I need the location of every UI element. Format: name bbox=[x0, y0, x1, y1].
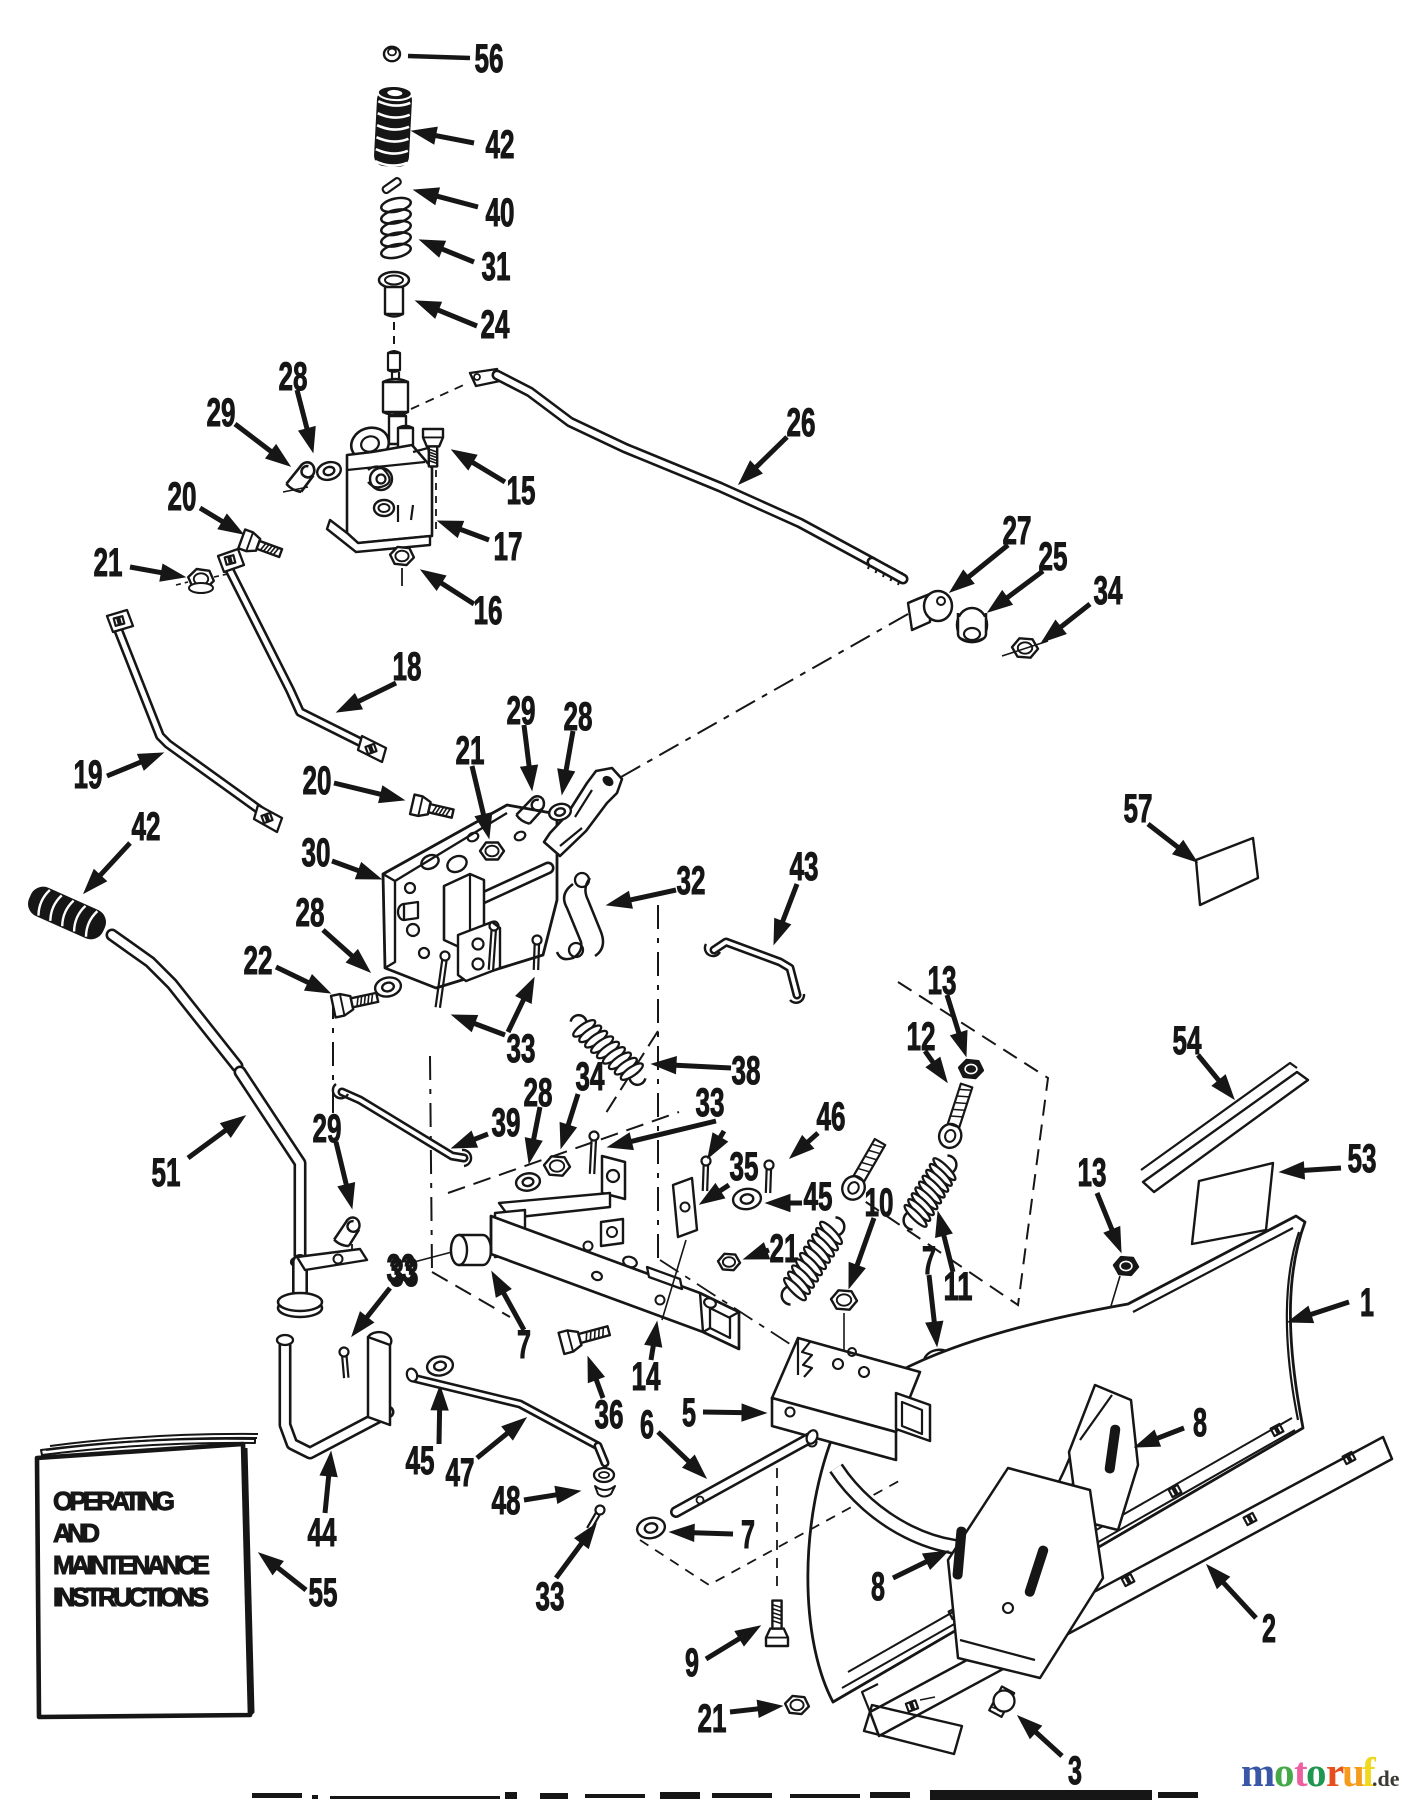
svg-text:19: 19 bbox=[74, 753, 103, 797]
svg-text:10: 10 bbox=[865, 1181, 894, 1225]
svg-text:12: 12 bbox=[907, 1015, 936, 1059]
svg-text:21: 21 bbox=[698, 1697, 727, 1741]
svg-text:26: 26 bbox=[787, 401, 816, 445]
svg-text:22: 22 bbox=[244, 939, 273, 983]
svg-text:44: 44 bbox=[308, 1511, 337, 1555]
svg-text:31: 31 bbox=[482, 245, 511, 289]
svg-text:28: 28 bbox=[296, 891, 325, 935]
svg-text:43: 43 bbox=[790, 845, 819, 889]
svg-text:48: 48 bbox=[492, 1479, 521, 1523]
svg-text:7: 7 bbox=[922, 1239, 936, 1283]
svg-text:16: 16 bbox=[474, 589, 503, 633]
svg-text:13: 13 bbox=[928, 959, 957, 1003]
svg-text:34: 34 bbox=[576, 1055, 605, 1099]
svg-text:8: 8 bbox=[871, 1565, 885, 1609]
svg-text:20: 20 bbox=[303, 759, 332, 803]
svg-text:21: 21 bbox=[456, 729, 485, 773]
svg-text:INSTRUCTIONS: INSTRUCTIONS bbox=[53, 1582, 209, 1612]
svg-text:7: 7 bbox=[741, 1513, 755, 1557]
svg-text:38: 38 bbox=[732, 1049, 761, 1093]
svg-text:33: 33 bbox=[696, 1081, 725, 1125]
svg-text:30: 30 bbox=[302, 831, 331, 875]
svg-text:24: 24 bbox=[481, 303, 510, 347]
svg-text:46: 46 bbox=[817, 1095, 846, 1139]
svg-text:1: 1 bbox=[1360, 1281, 1374, 1325]
svg-text:13: 13 bbox=[1078, 1151, 1107, 1195]
svg-text:40: 40 bbox=[486, 191, 515, 235]
svg-text:36: 36 bbox=[595, 1393, 624, 1437]
svg-text:2: 2 bbox=[1262, 1607, 1276, 1651]
svg-text:56: 56 bbox=[475, 37, 504, 81]
svg-text:6: 6 bbox=[640, 1403, 654, 1447]
svg-text:29: 29 bbox=[207, 391, 236, 435]
svg-text:3: 3 bbox=[1068, 1749, 1082, 1793]
svg-text:42: 42 bbox=[132, 805, 161, 849]
svg-text:28: 28 bbox=[279, 355, 308, 399]
svg-text:11: 11 bbox=[944, 1265, 973, 1309]
svg-text:55: 55 bbox=[309, 1571, 338, 1615]
svg-text:5: 5 bbox=[682, 1391, 696, 1435]
svg-text:53: 53 bbox=[1348, 1137, 1377, 1181]
svg-text:32: 32 bbox=[677, 859, 706, 903]
svg-text:45: 45 bbox=[804, 1175, 833, 1219]
svg-text:33: 33 bbox=[507, 1027, 536, 1071]
svg-text:33: 33 bbox=[536, 1575, 565, 1619]
svg-text:28: 28 bbox=[564, 695, 593, 739]
svg-text:m: m bbox=[1241, 1749, 1275, 1795]
svg-text:45: 45 bbox=[406, 1439, 435, 1483]
svg-text:42: 42 bbox=[486, 123, 515, 167]
svg-text:25: 25 bbox=[1039, 535, 1068, 579]
svg-text:57: 57 bbox=[1124, 787, 1153, 831]
svg-text:28: 28 bbox=[524, 1071, 553, 1115]
svg-text:20: 20 bbox=[168, 475, 197, 519]
svg-text:27: 27 bbox=[1003, 509, 1032, 553]
svg-text:34: 34 bbox=[1094, 569, 1123, 613]
svg-text:o: o bbox=[1306, 1749, 1327, 1795]
svg-text:MAINTENANCE: MAINTENANCE bbox=[53, 1550, 210, 1580]
svg-text:7: 7 bbox=[517, 1323, 531, 1367]
svg-text:.de: .de bbox=[1372, 1766, 1400, 1791]
svg-text:17: 17 bbox=[494, 525, 523, 569]
svg-text:35: 35 bbox=[730, 1145, 759, 1189]
svg-text:51: 51 bbox=[152, 1151, 181, 1195]
svg-text:33: 33 bbox=[387, 1247, 416, 1291]
svg-text:15: 15 bbox=[507, 469, 536, 513]
svg-text:18: 18 bbox=[393, 645, 422, 689]
svg-text:8: 8 bbox=[1193, 1401, 1207, 1445]
svg-text:29: 29 bbox=[507, 689, 536, 733]
svg-text:o: o bbox=[1274, 1749, 1295, 1795]
svg-text:21: 21 bbox=[94, 541, 123, 585]
svg-text:39: 39 bbox=[492, 1101, 521, 1145]
svg-text:14: 14 bbox=[632, 1355, 661, 1399]
svg-text:AND: AND bbox=[53, 1518, 100, 1548]
svg-text:47: 47 bbox=[446, 1451, 475, 1495]
svg-text:OPERATING: OPERATING bbox=[53, 1486, 175, 1516]
svg-text:54: 54 bbox=[1173, 1019, 1202, 1063]
svg-text:29: 29 bbox=[313, 1107, 342, 1151]
svg-text:9: 9 bbox=[685, 1641, 699, 1685]
